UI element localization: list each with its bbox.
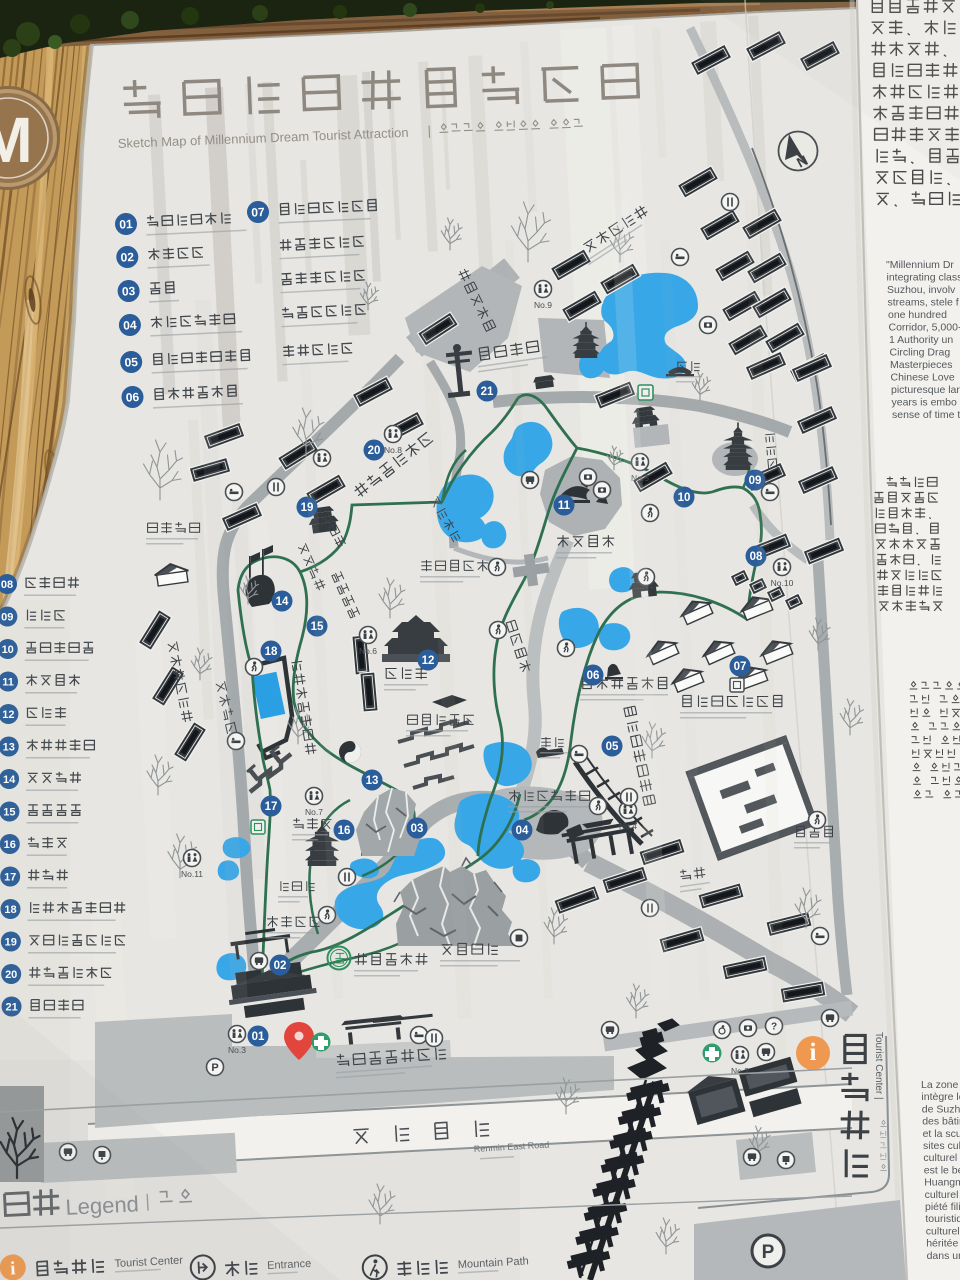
svg-text:piété filia: piété filia <box>925 1201 960 1213</box>
svg-text:P: P <box>211 1062 218 1074</box>
svg-text:06: 06 <box>587 670 600 682</box>
svg-text:"Millennium Dr: "Millennium Dr <box>886 259 954 271</box>
svg-text:05: 05 <box>606 741 619 753</box>
svg-text:16: 16 <box>338 825 351 837</box>
svg-text:20: 20 <box>368 445 381 457</box>
svg-text:sites cultu: sites cultu <box>923 1140 960 1152</box>
svg-text:Corridor, 5,000-: Corridor, 5,000- <box>889 322 960 334</box>
svg-text:12: 12 <box>422 655 435 667</box>
svg-text:07: 07 <box>734 661 747 673</box>
svg-text:No.3: No.3 <box>228 1045 246 1055</box>
svg-text:13: 13 <box>366 775 379 787</box>
svg-text:01: 01 <box>119 217 133 232</box>
svg-text:des bâtim: des bâtim <box>922 1116 960 1128</box>
svg-text:No.6: No.6 <box>359 646 377 656</box>
svg-text:one hundred: one hundred <box>888 309 947 321</box>
svg-text:11: 11 <box>558 500 571 512</box>
svg-text:No.4: No.4 <box>619 821 637 831</box>
svg-text:No.9: No.9 <box>534 300 552 310</box>
svg-text:culturel d: culturel d <box>923 1152 960 1164</box>
svg-text:streams, stele f: streams, stele f <box>888 297 959 309</box>
svg-text:est le be: est le be <box>924 1164 960 1176</box>
svg-text:No.10: No.10 <box>771 578 794 588</box>
svg-text:touristiqu: touristiqu <box>925 1213 960 1225</box>
svg-text:picturesque lan: picturesque lan <box>891 384 960 396</box>
svg-text:1 Authority un: 1 Authority un <box>889 334 953 346</box>
svg-text:héritée d: héritée d <box>926 1238 960 1250</box>
svg-text:14: 14 <box>276 596 289 608</box>
svg-text:07: 07 <box>251 205 265 220</box>
svg-text:dans un e: dans un e <box>927 1250 960 1262</box>
svg-text:17: 17 <box>265 801 278 813</box>
svg-text:sense of time t: sense of time t <box>892 409 960 421</box>
svg-text:18: 18 <box>265 646 278 658</box>
svg-text:M: M <box>0 104 33 176</box>
svg-text:03: 03 <box>411 823 424 835</box>
svg-text:01: 01 <box>252 1031 265 1043</box>
svg-text:No.11: No.11 <box>181 869 203 879</box>
svg-text:de Suzho: de Suzho <box>922 1103 960 1115</box>
svg-text:years is embo: years is embo <box>892 397 958 409</box>
svg-text:Tourist Center |: Tourist Center | <box>873 1032 884 1100</box>
svg-text:intègre le: intègre le <box>921 1091 960 1103</box>
svg-text:06: 06 <box>126 390 140 405</box>
svg-text:03: 03 <box>122 284 136 299</box>
svg-text:04: 04 <box>123 318 137 333</box>
svg-text:Chinese Love: Chinese Love <box>891 372 955 384</box>
svg-text:02: 02 <box>274 960 287 972</box>
svg-text:i: i <box>810 1039 817 1066</box>
svg-text:et la scul: et la scul <box>923 1128 960 1140</box>
svg-text:04: 04 <box>516 825 529 837</box>
svg-text:Masterpieces: Masterpieces <box>890 359 952 371</box>
svg-text:02: 02 <box>120 250 134 265</box>
svg-text:La zone p: La zone p <box>921 1079 960 1091</box>
svg-text:Huangme: Huangme <box>924 1177 960 1189</box>
svg-text:Circling Drag: Circling Drag <box>890 347 951 359</box>
svg-text:culturel e: culturel e <box>926 1225 960 1237</box>
svg-text:08: 08 <box>1 579 13 591</box>
svg-text:culturel p: culturel p <box>925 1189 960 1201</box>
svg-text:|: | <box>427 123 431 138</box>
svg-text:No.7: No.7 <box>305 807 323 817</box>
svg-text:No.8: No.8 <box>384 445 402 455</box>
svg-text:05: 05 <box>124 355 138 370</box>
svg-text:integrating class: integrating class <box>887 272 960 284</box>
svg-text:21: 21 <box>481 386 494 398</box>
svg-text:Suzhou, involv: Suzhou, involv <box>887 284 956 296</box>
svg-text:P: P <box>762 1242 775 1263</box>
